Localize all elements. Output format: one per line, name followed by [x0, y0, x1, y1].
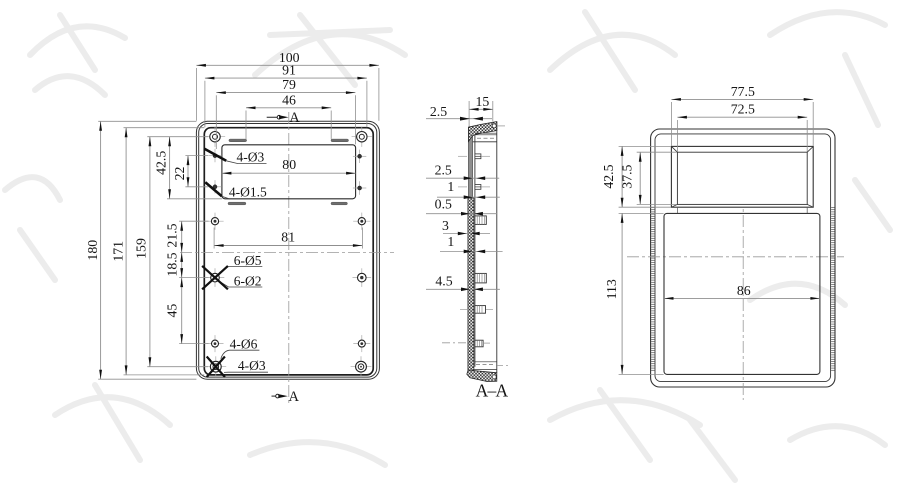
svg-text:1: 1 [447, 234, 454, 249]
svg-text:180: 180 [85, 240, 100, 261]
svg-text:91: 91 [282, 63, 296, 78]
svg-text:77.5: 77.5 [731, 84, 755, 99]
svg-text:113: 113 [604, 279, 619, 299]
svg-text:3: 3 [442, 218, 449, 233]
svg-text:171: 171 [110, 241, 125, 262]
svg-text:6-Ø2: 6-Ø2 [234, 273, 262, 288]
svg-text:81: 81 [281, 230, 295, 245]
svg-text:79: 79 [282, 77, 296, 92]
svg-text:4-Ø1.5: 4-Ø1.5 [229, 184, 267, 199]
svg-text:1: 1 [447, 179, 454, 194]
svg-text:6-Ø5: 6-Ø5 [234, 253, 262, 268]
svg-text:37.5: 37.5 [619, 164, 634, 188]
svg-text:72.5: 72.5 [731, 102, 755, 117]
svg-text:159: 159 [134, 238, 149, 259]
svg-text:42.5: 42.5 [154, 151, 169, 175]
svg-text:0.5: 0.5 [435, 197, 452, 212]
svg-text:4-Ø3: 4-Ø3 [237, 149, 265, 164]
svg-text:4-Ø3: 4-Ø3 [238, 358, 266, 373]
svg-text:42.5: 42.5 [601, 164, 616, 188]
svg-text:A: A [289, 389, 300, 405]
svg-text:45: 45 [165, 304, 180, 318]
svg-text:46: 46 [282, 92, 296, 107]
svg-text:18.5: 18.5 [165, 252, 180, 276]
svg-text:22: 22 [172, 167, 187, 181]
svg-text:80: 80 [282, 157, 296, 172]
svg-text:A: A [289, 110, 300, 126]
svg-text:2.5: 2.5 [435, 163, 452, 178]
svg-text:15: 15 [476, 94, 490, 109]
svg-text:2.5: 2.5 [430, 104, 447, 119]
svg-text:A–A: A–A [476, 380, 509, 400]
svg-text:21.5: 21.5 [165, 223, 180, 247]
svg-text:4-Ø6: 4-Ø6 [230, 336, 258, 351]
svg-text:4.5: 4.5 [435, 274, 452, 289]
svg-text:86: 86 [737, 283, 751, 298]
